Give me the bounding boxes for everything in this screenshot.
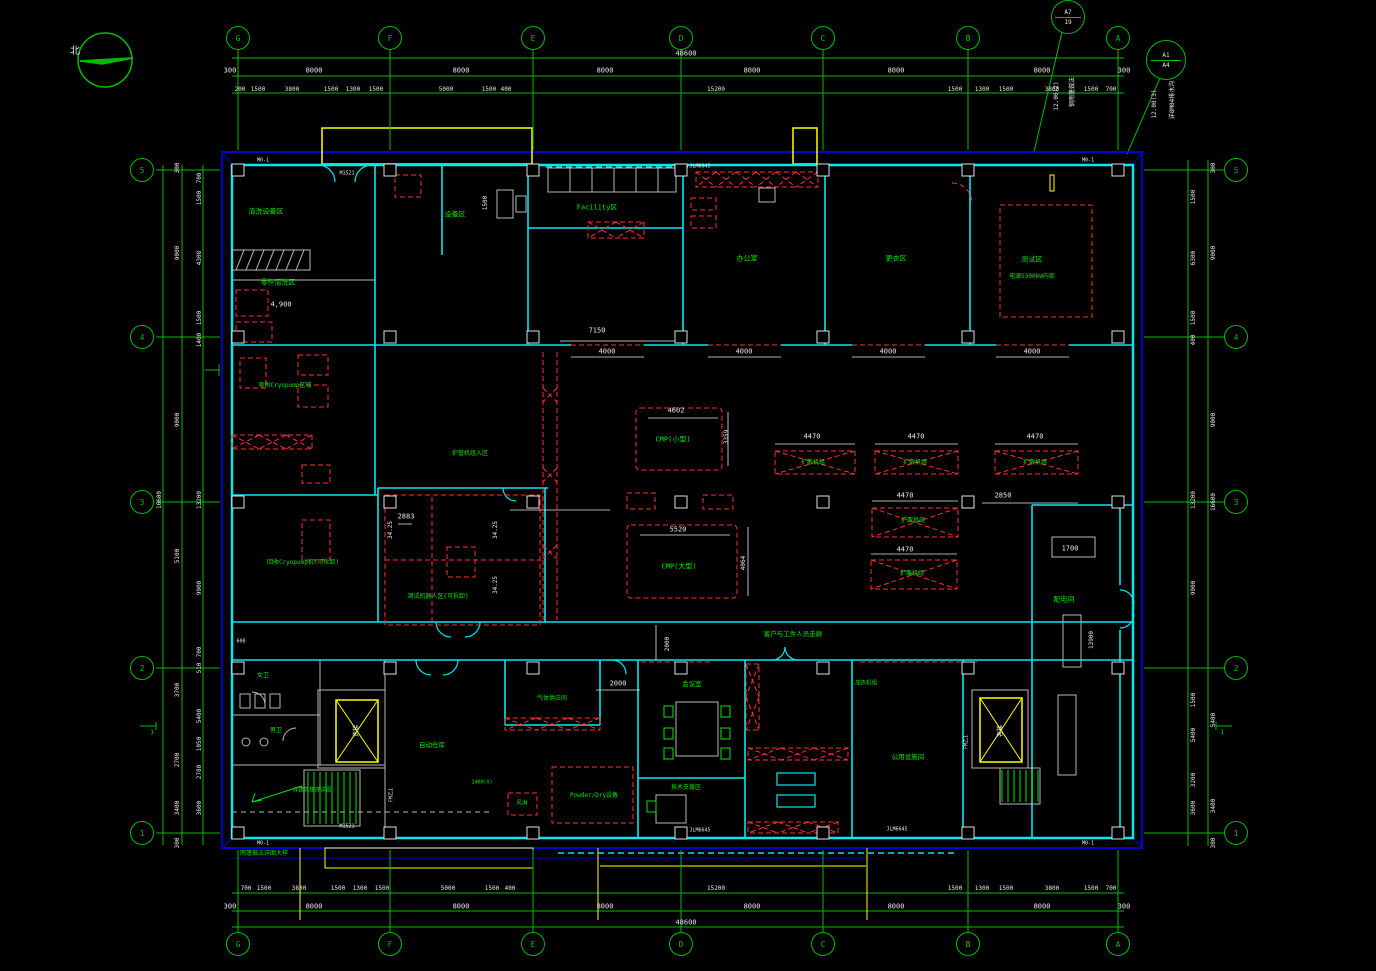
room-label: 扩散机组 xyxy=(801,460,825,466)
dim-text: 510 xyxy=(197,663,203,674)
dim-text: FM乙1 xyxy=(390,788,395,802)
cad-floor-plan-drawing: 北 GGFFEEDDCCBBAA5544332211A719A1A4 48600… xyxy=(0,0,1376,971)
dim-text: 4000 xyxy=(880,349,897,356)
dim-text: 4000 xyxy=(1024,349,1041,356)
dim-text: 3700 xyxy=(175,683,181,697)
dim-text: 700 xyxy=(241,886,252,892)
dim-text: 1700 xyxy=(1062,546,1079,553)
dim-text: 1050 xyxy=(197,737,203,751)
dim-text: 6300 xyxy=(1191,251,1197,265)
column-marker xyxy=(817,662,829,674)
dim-text: 5100 xyxy=(175,549,181,563)
column-marker xyxy=(675,827,687,839)
dim-text: 34.25 xyxy=(388,521,394,539)
dim-text: M0-1 xyxy=(257,159,269,164)
dim-text: 8000 xyxy=(888,68,905,75)
column-marker xyxy=(384,496,396,508)
grid-bubble: F xyxy=(378,26,402,50)
plan-dim-lines xyxy=(398,341,1078,690)
dim-text: 5000 xyxy=(439,87,453,93)
dim-text: 13200 xyxy=(1191,491,1197,509)
dim-text: 3800 xyxy=(292,886,306,892)
dim-text: 700 xyxy=(197,173,203,184)
column-marker xyxy=(675,331,687,343)
column-marker xyxy=(675,164,687,176)
room-label: 男卫 xyxy=(270,728,282,734)
grid-bubble: B xyxy=(956,932,980,956)
column-marker xyxy=(817,827,829,839)
grid-bubble: 5 xyxy=(1224,158,1248,182)
room-label: 客户与工件人员走廊 xyxy=(764,631,823,638)
room-label: 测试区 xyxy=(1022,257,1043,264)
column-marker xyxy=(1112,496,1124,508)
dim-text: 1500 xyxy=(197,311,203,325)
dim-text: 1500 xyxy=(375,886,389,892)
dim-text: 13200 xyxy=(197,491,203,509)
grid-bubble: D xyxy=(669,26,693,50)
dim-text: 2850 xyxy=(995,493,1012,500)
dim-text: 5400 xyxy=(197,709,203,723)
column-marker xyxy=(817,331,829,343)
dim-text: 8000 xyxy=(744,68,761,75)
grid-bubble: 5 xyxy=(130,158,154,182)
room-label: 更衣区 xyxy=(886,256,907,263)
dim-text: 5400 xyxy=(1211,713,1217,727)
room-label: 1400(X) xyxy=(471,781,492,786)
dim-text: 1500 xyxy=(948,87,962,93)
dim-text: 8000 xyxy=(306,68,323,75)
grid-bubble: E xyxy=(521,932,545,956)
room-label: 雨篷做法详图大样 xyxy=(240,851,288,857)
room-label: 清洗设备区 xyxy=(249,209,284,216)
dim-text: 货梯 xyxy=(354,725,360,737)
dim-text: 9000 xyxy=(175,246,181,260)
grid-bubble: 4 xyxy=(1224,325,1248,349)
dim-text: 1500 xyxy=(483,196,489,210)
dim-text: 1300 xyxy=(346,87,360,93)
dim-text: JLM6645 xyxy=(689,165,710,170)
dim-text: 3800 xyxy=(1045,886,1059,892)
dim-text: M1521 xyxy=(339,825,354,830)
grid-bubble: 3 xyxy=(130,490,154,514)
column-marker xyxy=(384,164,396,176)
grid-bubble: 4 xyxy=(130,325,154,349)
dim-text: 1500 xyxy=(1191,693,1197,707)
dim-text: JLM6645 xyxy=(689,829,710,834)
dim-text: 1500 xyxy=(324,87,338,93)
dim-text: 48600 xyxy=(675,51,696,58)
room-label: 扩散机组 xyxy=(903,460,927,466)
room-label: 办公室 xyxy=(737,256,758,263)
dim-text: 2883 xyxy=(398,514,415,521)
column-marker xyxy=(962,827,974,839)
dim-text: M0-1 xyxy=(1082,159,1094,164)
column-marker xyxy=(384,331,396,343)
column-marker xyxy=(232,496,244,508)
dim-text: 4470 xyxy=(897,547,914,554)
column-marker xyxy=(527,827,539,839)
dim-text: 4470 xyxy=(908,434,925,441)
column-marker xyxy=(962,662,974,674)
dim-text: JLM6645 xyxy=(886,828,907,833)
dim-text: 34.25 xyxy=(493,576,499,594)
dim-text: 1300 xyxy=(975,886,989,892)
dim-text: 3600 xyxy=(197,801,203,815)
dim-text: 4,900 xyxy=(270,302,291,309)
dim-text: 1500 xyxy=(251,87,265,93)
column-marker xyxy=(527,164,539,176)
room-label: 1 xyxy=(150,730,154,736)
grid-bubble: F xyxy=(378,932,402,956)
column-marker xyxy=(527,331,539,343)
room-label: 1 xyxy=(1220,730,1224,736)
room-label: 吸附Cryopump区域 xyxy=(259,383,312,389)
room-label: 炉管机组入区 xyxy=(452,451,488,457)
dim-text: 3359 xyxy=(724,430,730,444)
room-label: 回收Cryopump机(可拆卸) xyxy=(267,560,339,566)
dim-text: FM乙1 xyxy=(965,735,970,749)
dim-text: 2000 xyxy=(665,637,671,651)
grid-bubble: G xyxy=(226,932,250,956)
dim-text: 5520 xyxy=(670,527,687,534)
room-label: 加热机组 xyxy=(855,681,877,687)
dim-text: 详8M04排水沟 xyxy=(1170,81,1176,119)
dim-text: 1500 xyxy=(1084,87,1098,93)
dim-text: 7150 xyxy=(589,328,606,335)
dim-text: 1500 xyxy=(482,87,496,93)
room-label: Facility区 xyxy=(577,205,618,212)
column-marker xyxy=(817,164,829,176)
dim-text: 5000 xyxy=(441,886,455,892)
dim-text: 4308 xyxy=(197,251,203,265)
north-arrow-icon xyxy=(78,33,133,87)
dim-text: 13900 xyxy=(1089,631,1095,649)
room-label: 女卫 xyxy=(257,673,269,679)
grid-bubble: D xyxy=(669,932,693,956)
dim-text: 8000 xyxy=(453,904,470,911)
column-marker xyxy=(527,662,539,674)
dim-text: 1300 xyxy=(353,886,367,892)
room-label: 公用设施间 xyxy=(892,754,925,761)
dim-text: 600 xyxy=(236,640,245,645)
dim-text: 9900 xyxy=(1191,581,1197,595)
dim-text: 300 xyxy=(1211,838,1217,849)
grid-bubble: 3 xyxy=(1224,490,1248,514)
grid-bubble: E xyxy=(521,26,545,50)
dim-text: 钢雨篷做法 xyxy=(1070,77,1076,107)
dim-text: 4470 xyxy=(1027,434,1044,441)
room-label: 扩散机组 xyxy=(1023,460,1047,466)
dim-text: 300 xyxy=(1211,163,1217,174)
dim-text: 9000 xyxy=(1211,413,1217,427)
dim-text: 8000 xyxy=(597,904,614,911)
column-marker xyxy=(675,496,687,508)
dim-text: 48600 xyxy=(675,920,696,927)
dim-text: 16600 xyxy=(1211,493,1217,511)
dim-text: 200 xyxy=(235,87,246,93)
dim-text: 1500 xyxy=(331,886,345,892)
dim-text: 5400 xyxy=(1191,728,1197,742)
dim-text: 700 xyxy=(1106,87,1117,93)
grid-bubble: C xyxy=(811,932,835,956)
column-marker xyxy=(962,331,974,343)
column-marker xyxy=(962,496,974,508)
dim-text: 400 xyxy=(1191,335,1197,346)
dim-text: 客梯 xyxy=(998,725,1004,737)
dim-text: M0-1 xyxy=(1082,842,1094,847)
column-marker xyxy=(232,662,244,674)
dim-text: 3800 xyxy=(285,87,299,93)
dim-text: 8000 xyxy=(1034,904,1051,911)
dim-text: 700 xyxy=(1106,886,1117,892)
detail-ref-bubble: A719 xyxy=(1051,0,1085,34)
dim-text: 300 xyxy=(175,838,181,849)
dim-text: 1400 xyxy=(197,333,203,347)
dim-text: 8000 xyxy=(597,68,614,75)
dim-text: 4602 xyxy=(668,408,685,415)
dim-text: 9000 xyxy=(175,413,181,427)
grid-bubble: A xyxy=(1106,26,1130,50)
room-label: 详建筑楼梯详图 xyxy=(293,788,332,794)
room-label: 自动仓库 xyxy=(419,742,445,749)
dim-text: 16600 xyxy=(157,491,163,509)
dim-text: 3400 xyxy=(1211,799,1217,813)
room-label: Powder/Dry设备 xyxy=(570,793,618,799)
dim-text: 3200 xyxy=(1191,773,1197,787)
column-marker xyxy=(817,496,829,508)
dim-text: 300 xyxy=(1118,904,1131,911)
column-marker xyxy=(384,827,396,839)
dim-text: 2700 xyxy=(175,753,181,767)
column-marker xyxy=(675,662,687,674)
dim-text: 400 xyxy=(505,886,516,892)
room-label: 电源5300kW内部 xyxy=(1009,274,1055,280)
dim-text: 4000 xyxy=(599,349,616,356)
detail-ref-bubble: A1A4 xyxy=(1146,40,1186,80)
dim-text: 300 xyxy=(224,68,237,75)
dim-text: 8000 xyxy=(1034,68,1051,75)
dim-text: 300 xyxy=(175,163,181,174)
dim-text: 15200 xyxy=(707,886,725,892)
room-label: 测试机器人区(可拆卸) xyxy=(407,594,468,600)
dim-text: 1500 xyxy=(1191,311,1197,325)
north-label: 北 xyxy=(70,47,80,57)
grid-bubble: 2 xyxy=(130,656,154,680)
dim-text: 4470 xyxy=(804,434,821,441)
dim-text: 8000 xyxy=(744,904,761,911)
dim-text: 1500 xyxy=(485,886,499,892)
grid-bubble: 1 xyxy=(1224,821,1248,845)
dim-text: M1521 xyxy=(339,172,354,177)
column-marker xyxy=(1112,331,1124,343)
dim-text: 1500 xyxy=(1084,886,1098,892)
dim-text: 1500 xyxy=(197,191,203,205)
room-label: 会议室 xyxy=(682,681,702,688)
dim-text: 1500 xyxy=(999,87,1013,93)
grid-and-columns-layer xyxy=(156,50,1224,932)
grid-bubble: 2 xyxy=(1224,656,1248,680)
dim-text: 12.00(3) xyxy=(1152,90,1158,119)
dim-text: 4064 xyxy=(741,556,747,570)
dim-text: M0-1 xyxy=(257,842,269,847)
room-label: 风淋 xyxy=(516,801,527,807)
dim-text: 9900 xyxy=(197,581,203,595)
dim-text: 2000 xyxy=(610,681,627,688)
room-label: 气体供应间 xyxy=(537,696,567,702)
dim-text: 8000 xyxy=(453,68,470,75)
column-marker xyxy=(527,496,539,508)
dim-text: 1500 xyxy=(369,87,383,93)
grid-bubble: G xyxy=(226,26,250,50)
column-marker xyxy=(232,331,244,343)
dim-text: 9000 xyxy=(1211,246,1217,260)
room-label: 零件清洗区 xyxy=(261,280,296,287)
column-marker xyxy=(1112,662,1124,674)
dim-text: 3400 xyxy=(175,801,181,815)
column-marker xyxy=(962,164,974,176)
dim-text: 700 xyxy=(197,647,203,658)
room-label: 设备区 xyxy=(445,212,466,219)
dim-text: 2780 xyxy=(197,765,203,779)
dim-text: 34.25 xyxy=(493,521,499,539)
room-label: 扩散机组 xyxy=(900,571,924,577)
dim-text: 1500 xyxy=(257,886,271,892)
dim-text: 15200 xyxy=(707,87,725,93)
dim-text: 1500 xyxy=(999,886,1013,892)
column-marker xyxy=(384,662,396,674)
room-label: 扩散机组 xyxy=(901,518,925,524)
grid-bubble: C xyxy=(811,26,835,50)
dim-text: 8000 xyxy=(888,904,905,911)
dim-text: 300 xyxy=(1118,68,1131,75)
room-label: 配电间 xyxy=(1054,597,1075,604)
column-marker xyxy=(232,827,244,839)
dim-text: 1300 xyxy=(975,87,989,93)
dim-text: 400 xyxy=(501,87,512,93)
dim-text: 1500 xyxy=(948,886,962,892)
grid-bubble: B xyxy=(956,26,980,50)
column-marker xyxy=(1112,164,1124,176)
doors-cyan xyxy=(318,165,1134,807)
room-label: 技术支援区 xyxy=(671,785,701,791)
column-marker xyxy=(232,164,244,176)
grid-bubble: 1 xyxy=(130,821,154,845)
dim-text: 8000 xyxy=(306,904,323,911)
dim-text: 3600 xyxy=(1191,801,1197,815)
dim-text: 300 xyxy=(224,904,237,911)
room-label: CMP(小型) xyxy=(655,437,690,444)
grid-bubble: A xyxy=(1106,932,1130,956)
dim-text: 12.00(2) xyxy=(1054,82,1060,111)
column-marker xyxy=(1112,827,1124,839)
plan-linework xyxy=(0,0,1376,971)
room-label: CMP(大型) xyxy=(661,564,696,571)
dim-text: 4000 xyxy=(736,349,753,356)
dim-text: 4470 xyxy=(897,493,914,500)
dim-text: 1500 xyxy=(1191,190,1197,204)
canopy-and-elevators xyxy=(300,128,1054,920)
